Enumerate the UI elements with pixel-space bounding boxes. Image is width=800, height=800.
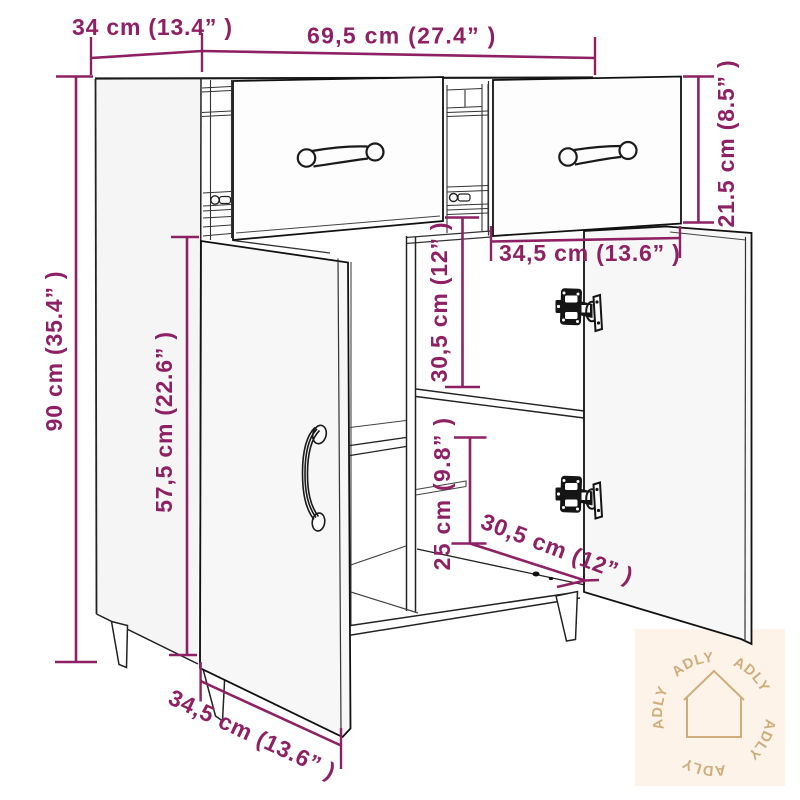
svg-text:25 cm (9.8” ): 25 cm (9.8” ) bbox=[429, 417, 455, 571]
svg-text:34 cm (13.4” ): 34 cm (13.4” ) bbox=[72, 14, 233, 40]
svg-text:69,5 cm (27.4” ): 69,5 cm (27.4” ) bbox=[307, 23, 497, 49]
svg-text:34,5 cm (13.6” ): 34,5 cm (13.6” ) bbox=[499, 240, 681, 266]
svg-text:90 cm (35.4” ): 90 cm (35.4” ) bbox=[41, 271, 67, 432]
svg-text:57,5 cm (22.6” ): 57,5 cm (22.6” ) bbox=[151, 331, 177, 513]
svg-text:30,5 cm (12” ): 30,5 cm (12” ) bbox=[426, 222, 452, 383]
svg-text:21.5 cm (8.5” ): 21.5 cm (8.5” ) bbox=[713, 60, 739, 228]
